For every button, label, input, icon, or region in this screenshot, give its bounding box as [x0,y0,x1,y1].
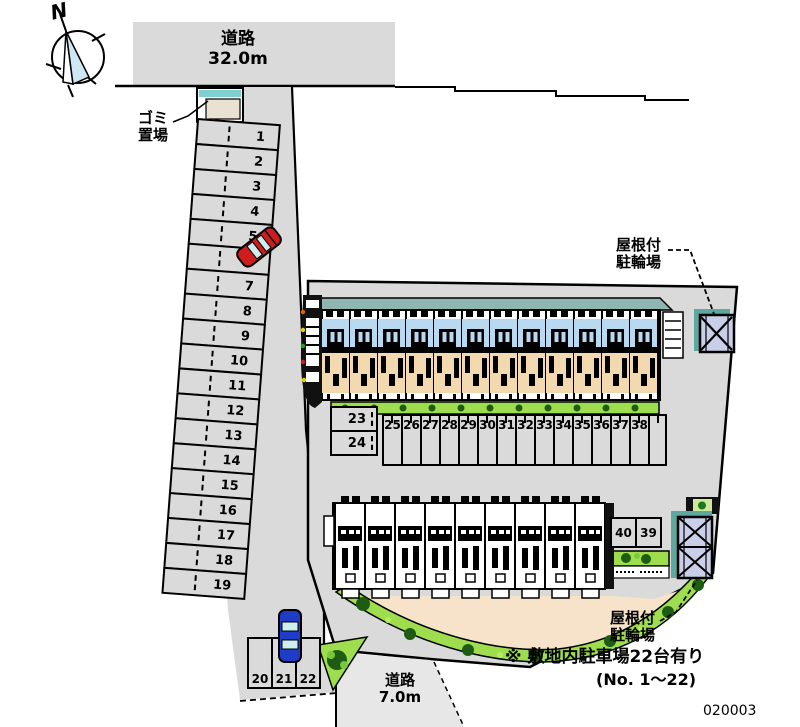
stall-number: 15 [220,479,239,493]
upper-hedge [331,402,659,414]
stall-number: 10 [229,354,248,368]
upper-building [301,295,683,408]
site-plan-base [0,0,800,727]
parking-stall-23: 23 [330,406,378,432]
site-plan-map: N 道路32.0m ゴミ置場 屋根付駐輪場 屋根付駐輪場 道路7.0m ※ 敷地… [0,0,800,727]
stall-number: 12 [226,404,245,418]
stall-number: 36 [593,419,610,431]
stall-number: 19 [213,579,232,593]
stall-number: 38 [631,419,648,431]
stall-number: 2 [253,155,263,169]
parking-stall-22: 22 [295,637,321,689]
stall-number: 33 [536,419,553,431]
top-road-label: 道路32.0m [192,30,284,69]
stall-number: 40 [612,527,635,539]
stall-number: 39 [637,527,660,539]
parking-stall-31: 31 [496,414,517,466]
stall-number: 27 [422,419,439,431]
parking-stall-26: 26 [401,414,422,466]
stall-number: 5 [248,230,258,244]
stall-number: 25 [384,419,401,431]
stall-number: 6 [246,255,256,269]
compass [46,14,105,97]
bottom-road-label: 道路7.0m [362,672,438,707]
plan-number: 020003 [703,703,756,719]
stall-number: 22 [297,673,319,685]
stall-number: 14 [222,454,241,468]
parking-stall-29: 29 [458,414,479,466]
stall-number: 21 [273,673,295,685]
stall-number: 24 [348,437,366,450]
parking-stall-39: 39 [635,517,662,548]
stall-number: 20 [249,673,271,685]
stall-number: 4 [250,205,260,219]
bike-shed-bottom-label: 屋根付駐輪場 [610,610,655,645]
bottom-road-name: 道路 [385,671,415,689]
parking-stall-28: 28 [439,414,460,466]
top-road-width: 32.0m [208,49,268,69]
site-note-line2: (No. 1～22) [596,671,696,689]
stall-number: 29 [460,419,477,431]
stall-number: 8 [242,305,252,319]
parking-stall-24: 24 [330,430,378,456]
parking-group-right-pair: 4039 [612,517,662,548]
right-hedge [612,551,669,578]
parking-stall-38: 38 [629,414,650,466]
stall-number: 35 [574,419,591,431]
stall-number: 7 [244,280,254,294]
stall-number: 13 [224,429,243,443]
top-road-name: 道路 [221,29,255,49]
parking-stall-36: 36 [591,414,612,466]
parking-stall-32: 32 [515,414,536,466]
roof-band [308,298,672,310]
parking-stall-35: 35 [572,414,593,466]
parking-group-mid-left: 2324 [330,408,378,456]
parking-stall-30: 30 [477,414,498,466]
parking-stall-37: 37 [610,414,631,466]
stall-number: 28 [441,419,458,431]
parking-stall-empty [648,414,667,466]
stall-number: 17 [216,529,235,543]
stall-number: 23 [348,413,366,426]
parking-stall-27: 27 [420,414,441,466]
garbage-label: ゴミ置場 [138,110,168,145]
stall-number: 9 [240,330,250,344]
stall-number: 37 [612,419,629,431]
parking-stall-25: 25 [382,414,403,466]
stall-number: 26 [403,419,420,431]
parking-stall-40: 40 [610,517,637,548]
stall-number: 18 [214,554,233,568]
stall-number: 1 [255,130,265,144]
bike-shed-top-label: 屋根付駐輪場 [616,237,661,272]
lower-building [324,496,614,598]
stall-number: 16 [218,504,237,518]
bottom-road-width: 7.0m [379,688,421,706]
parking-stall-20: 20 [247,637,273,689]
garbage-shed [173,88,243,122]
stall-number: 30 [479,419,496,431]
parking-stall-34: 34 [553,414,574,466]
parking-group-bottom-row: 202122 [249,637,321,689]
parking-stall-33: 33 [534,414,555,466]
stall-number: 11 [228,379,247,393]
stall-number: 32 [517,419,534,431]
stall-number: 3 [252,180,262,194]
parking-stall-21: 21 [271,637,297,689]
stall-number: 31 [498,419,515,431]
stall-number: 34 [555,419,572,431]
parking-group-mid-row: 2526272829303132333435363738 [384,414,667,466]
site-note-line1: ※ 敷地内駐車場22台有り [505,648,704,668]
